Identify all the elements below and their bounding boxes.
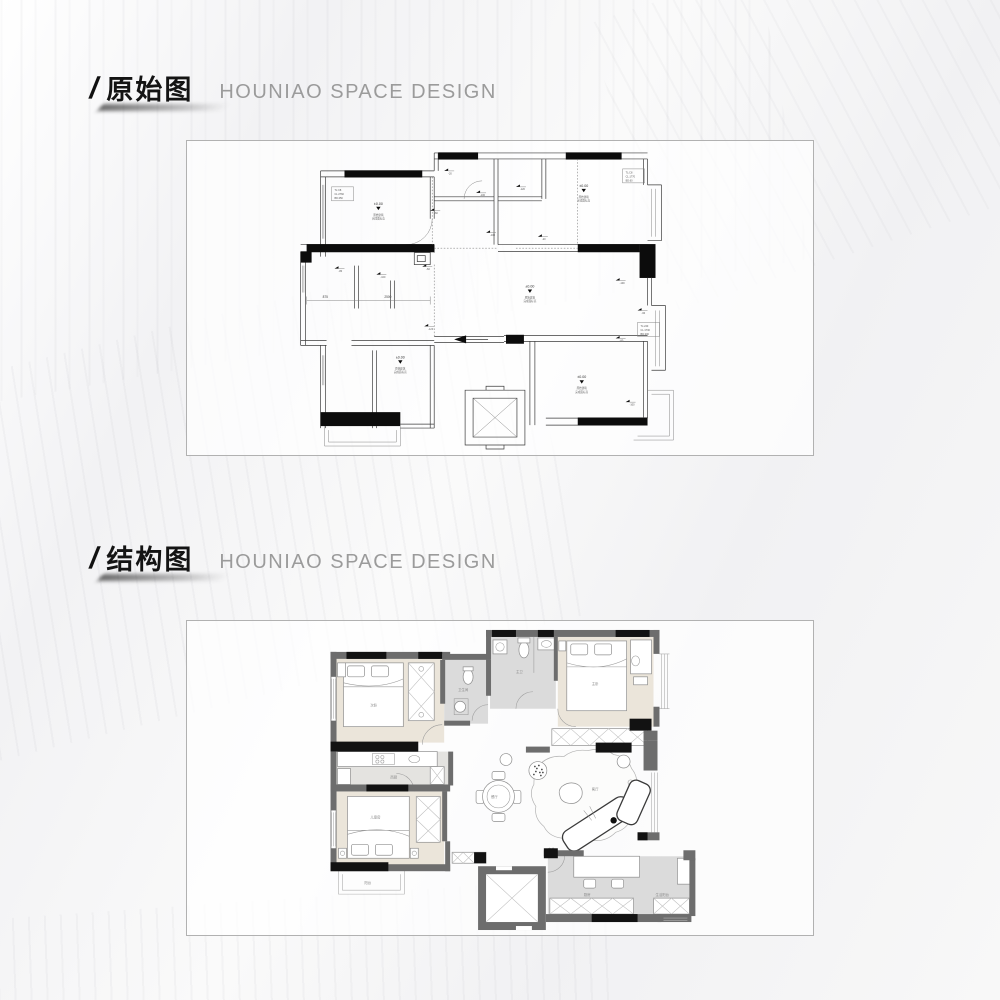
original-plan-panel: ±0.00 原始建筑 完成面标高 ±0.00 原始建筑 完成面标高 ±0.00 …	[186, 140, 814, 456]
svg-text:完成面标高: 完成面标高	[523, 299, 536, 303]
original-floorplan-drawing: ±0.00 原始建筑 完成面标高 ±0.00 原始建筑 完成面标高 ±0.00 …	[187, 141, 813, 455]
sofa-cushion	[610, 817, 616, 823]
elevation-value: ±0.00	[374, 202, 383, 206]
svg-text:CL:2760: CL:2760	[335, 193, 345, 196]
elevation-label: ±0.00 原始建筑 完成面标高	[372, 202, 385, 221]
section-header-structure: / 结构图 HOUNIAO SPACE DESIGN	[90, 528, 497, 574]
section-title-wrap: 结构图	[106, 547, 193, 574]
svg-text:完成面标高: 完成面标高	[575, 390, 588, 394]
elevation-sub1: 原始建筑	[373, 213, 384, 217]
room-label-bath1: 卫生间	[458, 687, 469, 692]
structure-plan-panel: 餐厅	[186, 620, 814, 936]
svg-text:BD:60: BD:60	[626, 179, 634, 182]
svg-text:TL:C8: TL:C8	[626, 171, 633, 174]
section-title-wrap: 原始图	[106, 77, 193, 104]
plan1-note-boxes: TL:C8 CL:2760 BD:450 TL:C8 CL:1770 BD:60…	[332, 169, 660, 336]
svg-text:-20: -20	[448, 172, 452, 175]
room-label-utility: 生活阳台	[656, 892, 670, 897]
svg-text:-120: -120	[520, 188, 526, 191]
room-label-dining: 餐厅	[491, 794, 498, 799]
toilet	[519, 642, 529, 658]
poster-page: / 原始图 HOUNIAO SPACE DESIGN	[0, 0, 1000, 1000]
svg-text:±0.00: ±0.00	[525, 285, 534, 289]
dining-table: 餐厅	[476, 772, 521, 822]
svg-text:-120: -120	[428, 328, 434, 331]
elevation-label: ±0.00 原始建筑 完成面标高	[394, 355, 407, 374]
svg-text:-60: -60	[642, 312, 646, 315]
svg-text:完成面标高: 完成面标高	[394, 370, 407, 374]
section-title-original: 原始图	[106, 75, 193, 105]
svg-text:TL:C8: TL:C8	[335, 189, 342, 192]
svg-text:-60: -60	[426, 268, 430, 271]
svg-text:BD:200: BD:200	[641, 333, 650, 336]
brand-text: HOUNIAO SPACE DESIGN	[219, 551, 496, 574]
brand-text: HOUNIAO SPACE DESIGN	[219, 81, 496, 104]
title-shadow	[98, 104, 253, 111]
wardrobe	[416, 796, 440, 842]
note-box-right: TL:C8 CL:1770 BD:60	[623, 169, 645, 183]
elevation-label: ±0.00 原始建筑 完成面标高	[577, 184, 590, 203]
svg-text:-20: -20	[542, 238, 546, 241]
elevation-label: ±0.00 原始建筑 完成面标高	[575, 375, 588, 394]
note-box-right2: TL:240 CL:1730 BD:200	[638, 322, 660, 336]
svg-text:-100: -100	[620, 282, 626, 285]
svg-text:-60: -60	[434, 212, 438, 215]
dim-875: 875	[323, 295, 329, 299]
room-label-west-kitchen: 西厨	[390, 774, 397, 779]
elevation-label: ±0.00 原始建筑 完成面标高	[523, 285, 536, 304]
bedside-desk	[338, 663, 346, 677]
svg-text:完成面标高: 完成面标高	[577, 198, 590, 202]
svg-text:-100: -100	[380, 276, 386, 279]
room-label-bed1: 次卧	[370, 703, 377, 708]
svg-text:±0.00: ±0.00	[577, 375, 586, 379]
svg-text:-80: -80	[339, 270, 343, 273]
plan2-living-room: 餐厅	[476, 749, 652, 854]
room-label-bed3: 儿童房	[370, 814, 381, 819]
svg-text:-100: -100	[630, 404, 636, 407]
room-label-kitchen: 厨房	[584, 892, 591, 897]
potted-plant	[529, 762, 547, 780]
svg-text:CL:1770: CL:1770	[626, 175, 636, 178]
note-box-left: TL:C8 CL:2760 BD:450	[332, 187, 354, 201]
svg-text:BD:450: BD:450	[335, 197, 344, 200]
room-label-master: 主卧	[592, 681, 599, 686]
structure-floorplan-drawing: 餐厅	[187, 621, 813, 935]
title-shadow	[98, 574, 253, 581]
svg-text:原始建筑: 原始建筑	[525, 295, 536, 299]
plan1-elevation-labels: ±0.00 原始建筑 完成面标高 ±0.00 原始建筑 完成面标高 ±0.00 …	[372, 184, 591, 394]
bed	[347, 796, 409, 858]
svg-text:原始建筑: 原始建筑	[577, 386, 588, 390]
nightstand	[339, 848, 347, 858]
tall-cabinet	[677, 858, 690, 884]
svg-text:原始建筑: 原始建筑	[395, 366, 406, 370]
plan1-dimensions: 875 2500	[307, 295, 431, 304]
bath-vanity	[538, 638, 555, 650]
bed	[344, 663, 404, 727]
svg-text:±0.00: ±0.00	[579, 184, 588, 188]
washing-machine	[493, 640, 507, 654]
svg-text:-100: -100	[490, 234, 496, 237]
room-label-bath2: 主卫	[516, 669, 523, 674]
svg-text:原始建筑: 原始建筑	[579, 195, 590, 199]
nightstand	[559, 641, 566, 651]
svg-text:CL:1730: CL:1730	[641, 329, 651, 332]
slash-mark: /	[87, 544, 102, 574]
side-stool	[500, 754, 512, 766]
coffee-table	[559, 783, 582, 804]
section-header-original: / 原始图 HOUNIAO SPACE DESIGN	[90, 58, 497, 104]
svg-text:-80: -80	[620, 340, 624, 343]
slash-mark: /	[87, 74, 102, 104]
svg-text:-100: -100	[480, 194, 486, 197]
plan2-elevator	[478, 866, 546, 930]
svg-text:TL:240: TL:240	[641, 325, 649, 328]
room-label-balcony: 阳台	[364, 880, 371, 885]
section-title-structure: 结构图	[106, 545, 193, 575]
wardrobe	[408, 663, 434, 721]
elevation-sub2: 完成面标高	[372, 216, 385, 220]
bed	[567, 641, 627, 711]
dim-2500: 2500	[384, 295, 391, 299]
room-label-living: 客厅	[592, 786, 599, 791]
round-side-table	[617, 755, 630, 768]
nightstand	[410, 848, 418, 858]
svg-text:±0.00: ±0.00	[396, 355, 405, 359]
base-cabinets	[550, 898, 690, 914]
